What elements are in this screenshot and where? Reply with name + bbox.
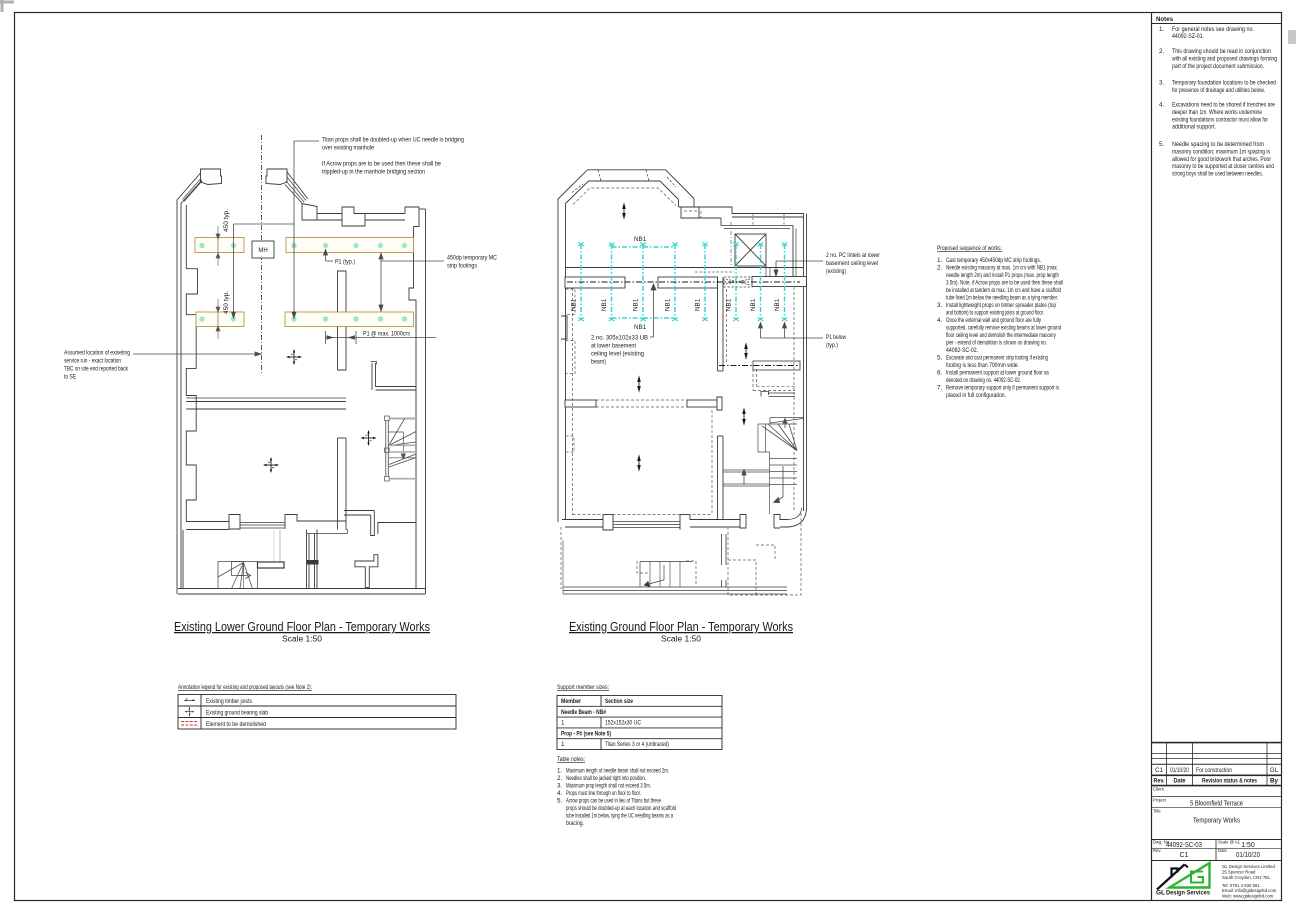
svg-text:Member: Member	[561, 698, 581, 705]
svg-text:ceiling level (existing: ceiling level (existing	[591, 351, 644, 358]
svg-text:and bottom) to support existin: and bottom) to support existing joists a…	[946, 310, 1044, 317]
svg-text:1.: 1.	[937, 257, 943, 264]
svg-text:Needle spacing to be determine: Needle spacing to be determined from	[1172, 141, 1264, 148]
svg-text:450 typ.: 450 typ.	[223, 209, 230, 232]
svg-text:Existing timber joists: Existing timber joists	[206, 698, 252, 705]
svg-text:Titan Series 3 or 4 (unbraced): Titan Series 3 or 4 (unbraced)	[605, 741, 669, 748]
svg-text:C1: C1	[1180, 852, 1189, 859]
svg-text:Table notes:: Table notes:	[557, 756, 585, 763]
svg-text:3.5m). Note, if Acrow props ar: 3.5m). Note, if Acrow props are to be us…	[946, 280, 1063, 287]
svg-text:Notes: Notes	[1156, 16, 1173, 23]
svg-text:4.: 4.	[557, 790, 563, 797]
svg-text:C1: C1	[1155, 767, 1164, 774]
svg-text:Rev.: Rev.	[1154, 778, 1165, 785]
svg-text:Existing Ground Floor Plan - T: Existing Ground Floor Plan - Temporary W…	[569, 620, 793, 634]
svg-text:7.: 7.	[937, 385, 943, 392]
svg-text:1: 1	[561, 720, 565, 727]
svg-text:bracing.: bracing.	[566, 820, 584, 827]
svg-text:over existing manhole: over existing manhole	[322, 145, 374, 152]
svg-text:part of the project document s: part of the project document submission.	[1172, 63, 1264, 70]
svg-text:Proposed sequence of works:: Proposed sequence of works:	[937, 245, 1002, 252]
svg-text:Maximum prop length shall not: Maximum prop length shall not exceed 3.5…	[566, 783, 651, 790]
svg-text:Tel: 0791 4 630 661: Tel: 0791 4 630 661	[1222, 883, 1260, 888]
svg-text:Design Services: Design Services	[1166, 890, 1210, 897]
svg-text:be installed at tandem at max.: be installed at tandem at max. 1m crs an…	[946, 287, 1061, 294]
svg-text:strong boys shall be used betw: strong boys shall be used between needle…	[1172, 171, 1263, 178]
svg-text:Needle Beam - NB#: Needle Beam - NB#	[561, 709, 606, 716]
svg-text:01/10/20: 01/10/20	[1236, 852, 1260, 859]
svg-text:floor ceiling level and demoli: floor ceiling level and demolish the int…	[946, 332, 1057, 339]
svg-text:pier - extend of demolition is: pier - extend of demolition is shown on …	[946, 340, 1047, 347]
svg-text:beam): beam)	[591, 359, 606, 366]
svg-text:Excavations need to be shored: Excavations need to be shored if trenche…	[1172, 102, 1275, 109]
svg-text:Props must line through on flo: Props must line through on floor to floo…	[566, 790, 641, 797]
svg-text:additional support.: additional support.	[1172, 124, 1216, 131]
svg-text:masonry to be supported at clo: masonry to be supported at closer centre…	[1172, 163, 1274, 170]
svg-text:Element to be demolished: Element to be demolished	[206, 721, 266, 728]
svg-text:(existing): (existing)	[826, 268, 846, 275]
svg-text:Assumed location of exiseting: Assumed location of exiseting	[64, 350, 130, 357]
svg-text:placed in full configuration.: placed in full configuration.	[946, 392, 1006, 399]
svg-text:Scale 1:50: Scale 1:50	[661, 635, 702, 644]
svg-text:NB1: NB1	[695, 298, 702, 311]
svg-text:footing is less than 700mm wid: footing is less than 700mm wide.	[946, 362, 1019, 369]
svg-text:1: 1	[561, 741, 565, 748]
svg-text:01/10/20: 01/10/20	[1170, 767, 1189, 774]
svg-text:MH: MH	[258, 248, 267, 254]
svg-text:4.: 4.	[1159, 102, 1165, 109]
svg-text:NB1: NB1	[601, 298, 608, 311]
svg-text:Temporary foundation locations: Temporary foundation locations to be che…	[1172, 80, 1276, 87]
svg-text:Scale @ A1: Scale @ A1	[1218, 839, 1241, 844]
svg-text:Once the external wall and gro: Once the external wall and ground floor …	[946, 317, 1042, 324]
svg-text:1:50: 1:50	[1241, 842, 1255, 849]
svg-text:If Acrow props are to be used: If Acrow props are to be used then these…	[322, 161, 441, 168]
svg-text:6.: 6.	[937, 370, 943, 377]
svg-text:GL Design Services Limited: GL Design Services Limited	[1222, 864, 1275, 869]
svg-text:2 no. 305x102x33 UB: 2 no. 305x102x33 UB	[591, 335, 648, 342]
svg-text:at lower basement: at lower basement	[591, 343, 636, 350]
svg-text:4.: 4.	[937, 317, 943, 324]
svg-text:Scale 1:50: Scale 1:50	[282, 635, 323, 644]
svg-text:denoted on drawing no. 44092-S: denoted on drawing no. 44092-SC-02.	[946, 377, 1021, 384]
svg-text:1.: 1.	[1159, 26, 1165, 33]
svg-text:Needle existing masonry at max: Needle existing masonry at max. 1m crs w…	[946, 265, 1058, 272]
svg-text:props should be doubled-up at: props should be doubled-up at each locat…	[566, 805, 676, 812]
svg-text:Rev.: Rev.	[1153, 848, 1161, 853]
svg-text:P1 below: P1 below	[826, 334, 846, 341]
svg-text:NB1: NB1	[726, 298, 733, 311]
svg-text:strip footings: strip footings	[447, 263, 477, 270]
svg-text:tube installed 1m below, tying: tube installed 1m below, tying the UC ne…	[566, 813, 673, 820]
svg-text:44092-SZ-01.: 44092-SZ-01.	[1172, 33, 1204, 40]
svg-text:Support member sizes:: Support member sizes:	[557, 684, 609, 691]
svg-text:Email: info@gldesignltd.com: Email: info@gldesignltd.com	[1222, 888, 1277, 893]
svg-text:trippled-up in the manhole bri: trippled-up in the manhole bridging sect…	[322, 169, 425, 176]
svg-text:GL: GL	[1270, 767, 1279, 774]
svg-text:allowed for good brickwork tha: allowed for good brickwork that arches. …	[1172, 156, 1271, 163]
svg-text:Date: Date	[1218, 848, 1228, 853]
svg-text:South Croydon, CR2 7EL: South Croydon, CR2 7EL	[1222, 875, 1271, 880]
svg-text:Client: Client	[1153, 787, 1165, 792]
svg-text:2.: 2.	[557, 775, 563, 782]
svg-text:For construction: For construction	[1196, 767, 1232, 774]
svg-text:5.: 5.	[1159, 141, 1165, 148]
svg-text:5 Bloomfield Terrace: 5 Bloomfield Terrace	[1190, 801, 1243, 808]
svg-text:5.: 5.	[557, 798, 563, 805]
svg-text:Install lightweight props on t: Install lightweight props on timber spre…	[946, 302, 1056, 309]
svg-text:needle length 2m) and install: needle length 2m) and install P1 props (…	[946, 272, 1059, 279]
svg-text:2.: 2.	[1159, 48, 1165, 55]
svg-text:Existing Lower Ground Floor Pl: Existing Lower Ground Floor Plan - Tempo…	[174, 620, 430, 634]
svg-text:Web: www.gldesignltd.com: Web: www.gldesignltd.com	[1222, 894, 1274, 899]
svg-text:3.: 3.	[1159, 80, 1165, 87]
svg-text:Cast temporary 450x450dp MC st: Cast temporary 450x450dp MC strip footin…	[946, 257, 1041, 264]
svg-text:Install permanent support at l: Install permanent support at lower groun…	[946, 370, 1049, 377]
svg-text:25 Spencer Road: 25 Spencer Road	[1222, 869, 1256, 874]
svg-text:tube fixed 1m below the needli: tube fixed 1m below the needling beam as…	[946, 295, 1058, 302]
svg-text:NB1: NB1	[665, 298, 672, 311]
svg-text:152x152x30 UC: 152x152x30 UC	[605, 720, 641, 727]
svg-text:3.: 3.	[937, 302, 943, 309]
svg-text:(typ.): (typ.)	[826, 342, 838, 349]
svg-text:TBC on site end reported back: TBC on site end reported back	[64, 366, 129, 373]
svg-text:3.: 3.	[557, 783, 563, 790]
svg-text:1.: 1.	[557, 768, 563, 775]
svg-text:supported, carefully remove ex: supported, carefully remove existing bea…	[946, 325, 1061, 332]
svg-text:Date: Date	[1174, 778, 1186, 785]
svg-text:to SE: to SE	[64, 374, 76, 381]
svg-text:Maximum length of needle beam: Maximum length of needle beam shall not …	[566, 768, 669, 775]
svg-text:NB1: NB1	[750, 298, 757, 311]
svg-text:masonry condition; maximum 1m: masonry condition; maximum 1m spacing is	[1172, 148, 1270, 155]
svg-text:deeper than 1m. Where works un: deeper than 1m. Where works undermine	[1172, 109, 1262, 116]
svg-text:NB1: NB1	[774, 298, 781, 311]
svg-text:for presence of drainage and u: for presence of drainage and utilities b…	[1172, 87, 1265, 94]
svg-text:Section size: Section size	[605, 698, 633, 705]
svg-text:NB1: NB1	[571, 298, 578, 311]
svg-text:P1 @ max. 1000crs: P1 @ max. 1000crs	[363, 331, 410, 338]
svg-text:44092-SC-02.: 44092-SC-02.	[946, 347, 978, 354]
svg-text:Annotation legend for existing: Annotation legend for existing and propo…	[178, 684, 312, 691]
svg-text:NB1: NB1	[634, 324, 647, 331]
svg-text:Temporary Works: Temporary Works	[1193, 818, 1240, 825]
svg-text:450 typ.: 450 typ.	[223, 291, 230, 314]
svg-text:Excavate and cast permanent st: Excavate and cast permanent strip footin…	[946, 355, 1048, 362]
svg-text:2 no. PC lintels at lower: 2 no. PC lintels at lower	[826, 252, 880, 259]
svg-text:GL: GL	[1156, 890, 1165, 897]
svg-text:Prop - P# (see Note 5): Prop - P# (see Note 5)	[561, 730, 611, 737]
svg-text:NB1: NB1	[634, 236, 647, 243]
svg-text:2.: 2.	[937, 265, 943, 272]
svg-text:Project: Project	[1153, 797, 1167, 802]
svg-text:Existing ground bearing slab: Existing ground bearing slab	[206, 710, 268, 717]
svg-text:Needles shall be jacked tight: Needles shall be jacked tight into posit…	[566, 775, 646, 782]
svg-text:This drawing should be read in: This drawing should be read in conjuncti…	[1172, 48, 1271, 55]
svg-text:450dp temporary MC: 450dp temporary MC	[447, 255, 497, 262]
svg-text:For general notes see drawing: For general notes see drawing no.	[1172, 26, 1254, 33]
svg-text:Revision status & notes: Revision status & notes	[1202, 778, 1257, 785]
svg-text:existing foundations contracto: existing foundations contractor must all…	[1172, 116, 1268, 123]
svg-text:P1 (typ.): P1 (typ.)	[335, 259, 355, 266]
svg-text:By: By	[1270, 778, 1279, 785]
svg-text:Acrow props can be used in lie: Acrow props can be used in lieu of Titan…	[566, 798, 661, 805]
svg-text:NB1: NB1	[633, 298, 640, 311]
svg-text:Remove temporary support only: Remove temporary support only if permane…	[946, 385, 1059, 392]
svg-text:with all existing and proposed: with all existing and proposed drawings …	[1171, 56, 1277, 63]
svg-text:basement ceiling level: basement ceiling level	[826, 260, 878, 267]
svg-text:44092-SC-03: 44092-SC-03	[1166, 842, 1202, 849]
svg-text:Titan props shall be doubled-u: Titan props shall be doubled-up when UC …	[322, 137, 464, 144]
svg-text:5.: 5.	[937, 355, 943, 362]
svg-text:service run - exact location: service run - exact location	[64, 358, 121, 365]
svg-text:Title: Title	[1153, 808, 1161, 813]
